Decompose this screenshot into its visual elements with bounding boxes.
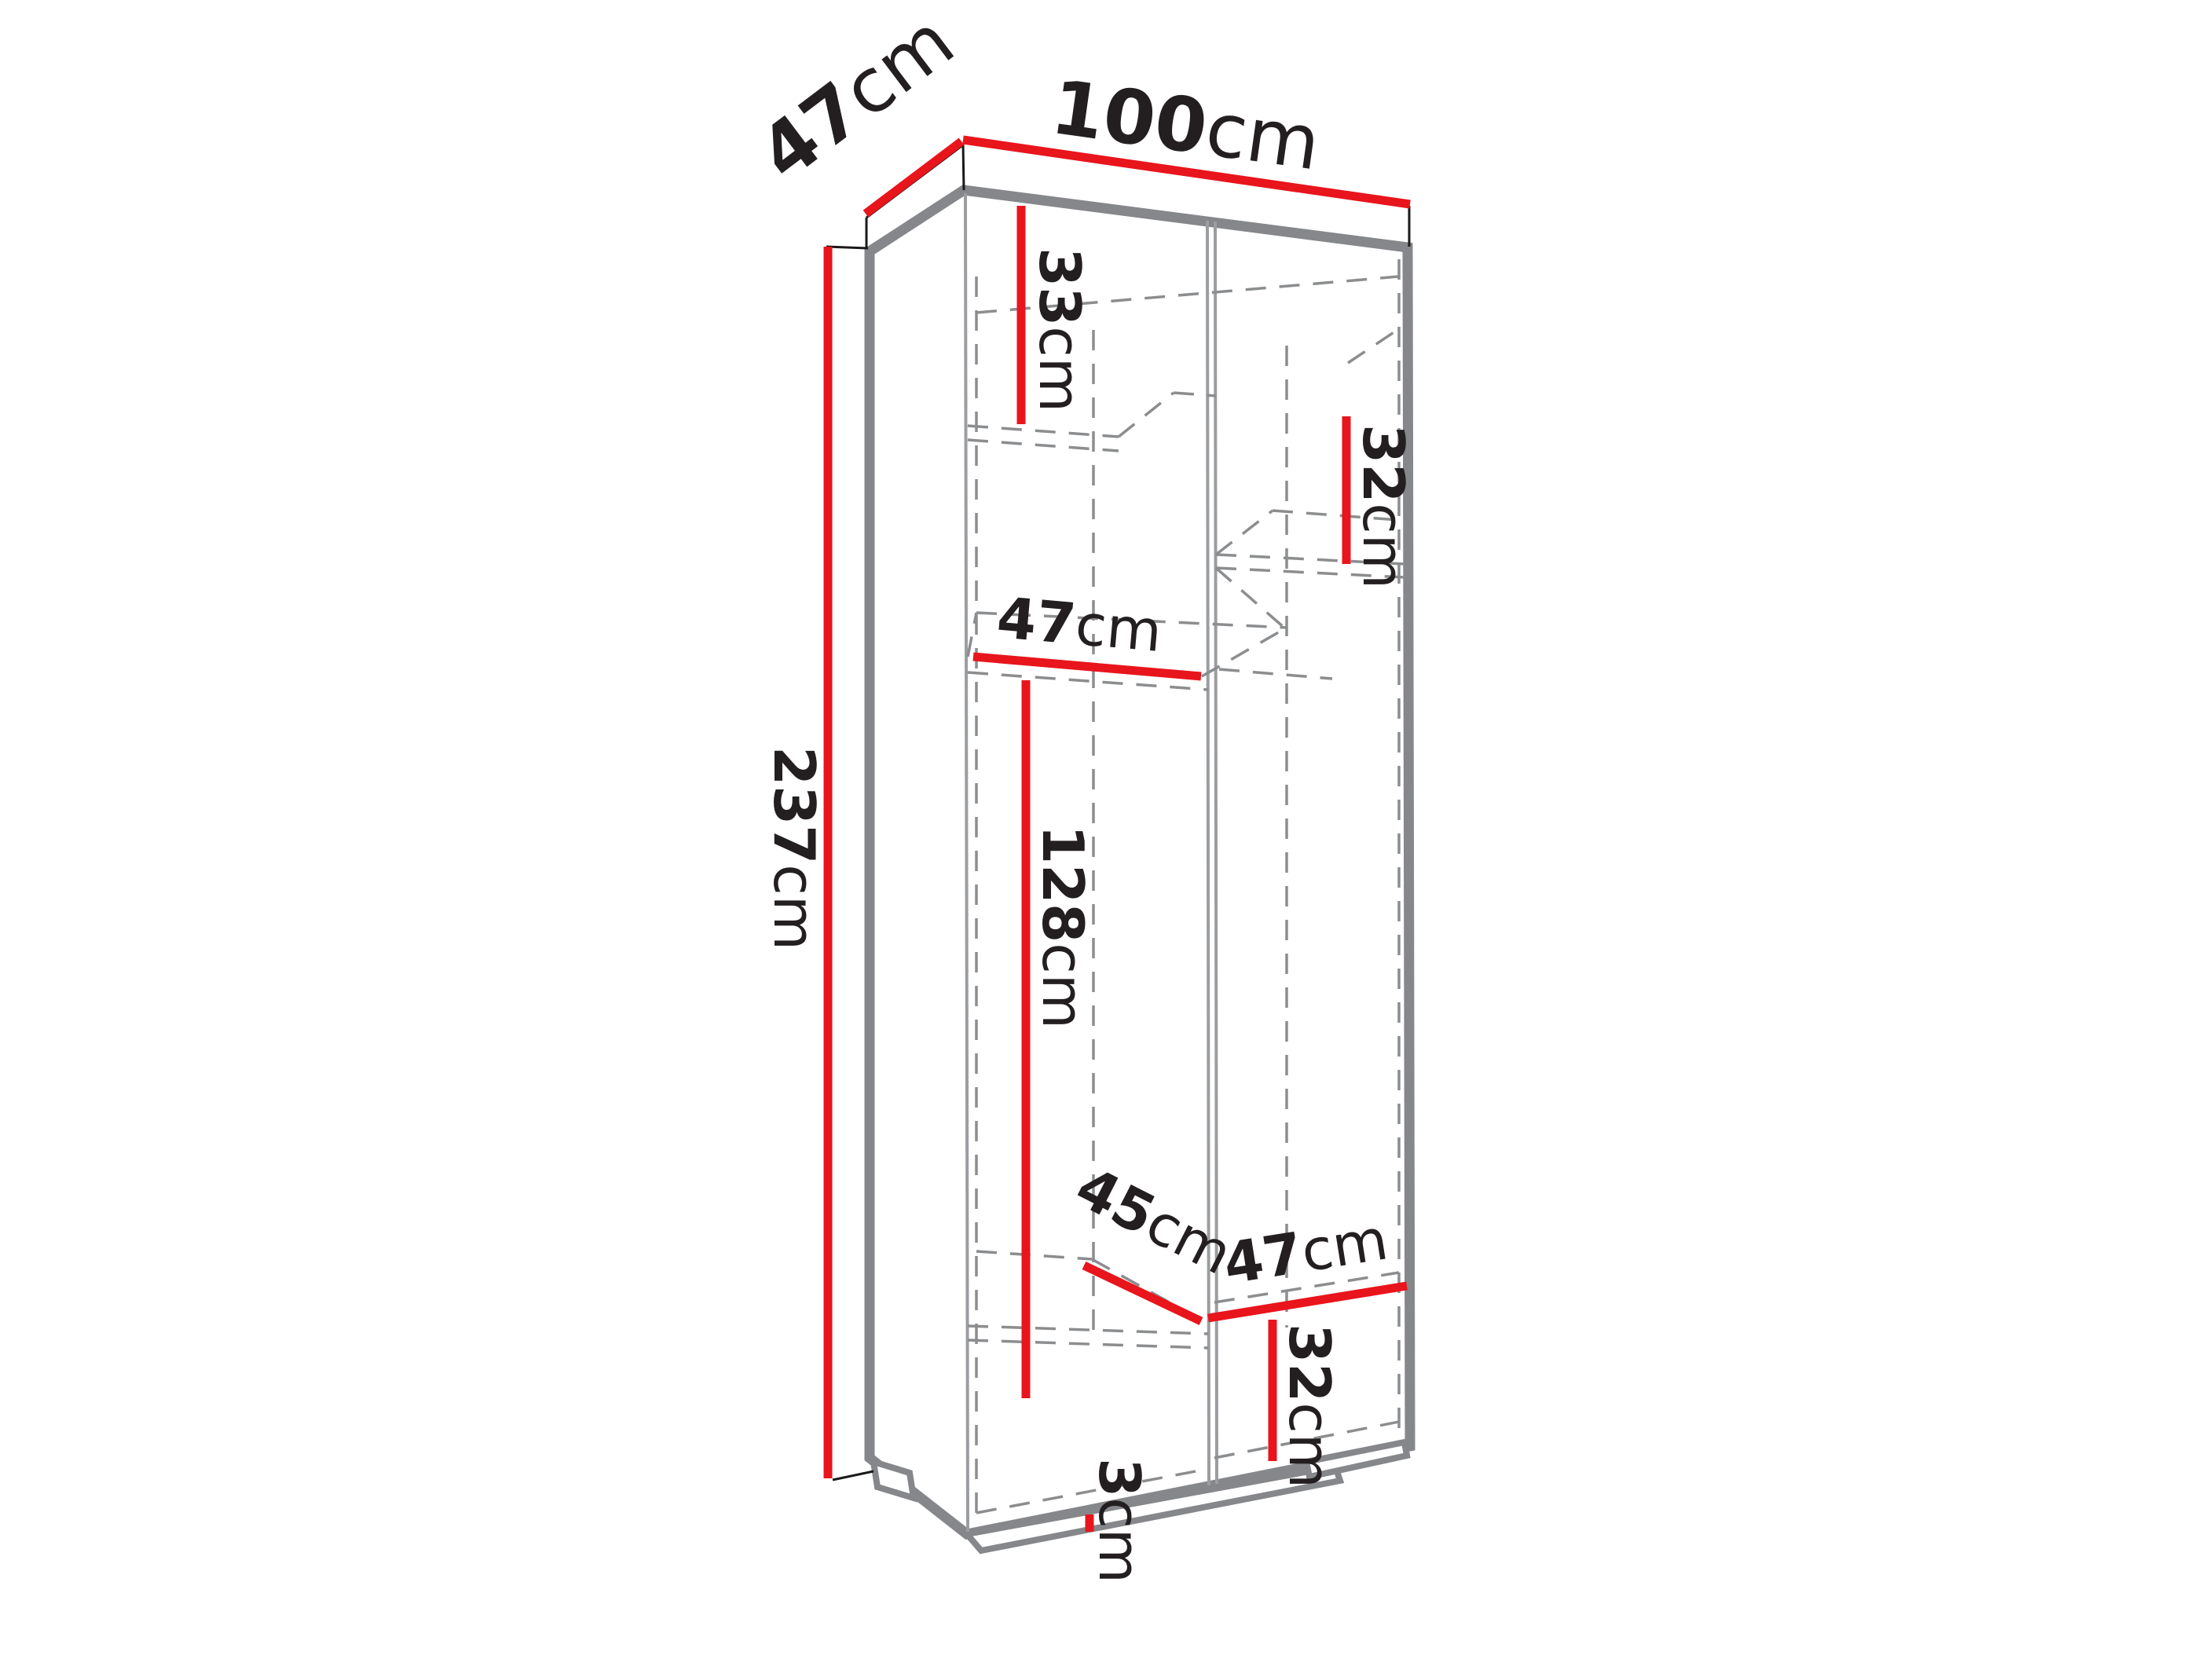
dim-label-top-left-33: 33cm (1027, 247, 1093, 412)
dim-label-top-right-32: 32cm (1350, 424, 1416, 589)
extension-line (963, 143, 964, 190)
center-divider-left-edge (1207, 221, 1209, 1485)
dim-label-height-left: 237cm (761, 746, 827, 950)
diagram-canvas: 47cm 100cm 237cm 33cm 32cm 47cm 128cm 45… (0, 0, 2212, 1659)
dim-label-plinth-3: 3cm (1086, 1458, 1152, 1584)
center-divider-right-edge (1215, 222, 1217, 1484)
extension-line (833, 1471, 873, 1480)
dim-label-bottom-right-32: 32cm (1276, 1324, 1342, 1489)
dim-label-width-top: 100cm (1046, 64, 1325, 188)
dim-label-hanging-128: 128cm (1030, 825, 1096, 1029)
extension-line (826, 247, 868, 248)
wardrobe-dimension-diagram: 47cm 100cm 237cm 33cm 32cm 47cm 128cm 45… (0, 0, 2212, 1659)
dim-label-depth-top: 47cm (744, 0, 969, 198)
